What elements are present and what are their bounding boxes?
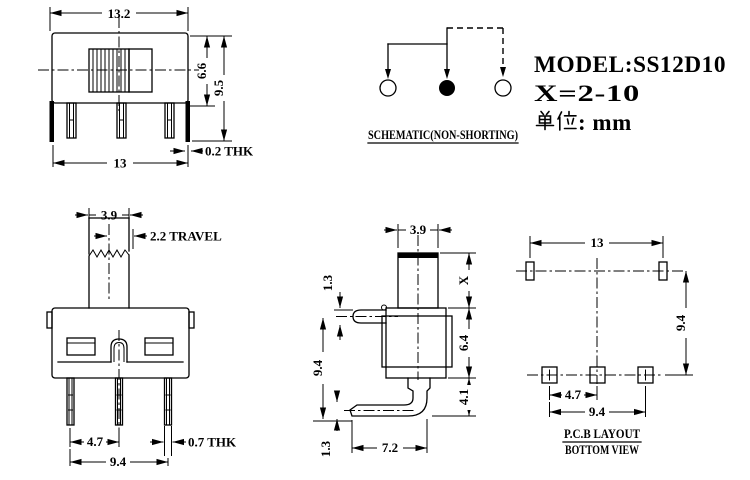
end-view: 3.9 2.2 TRAVEL bbox=[47, 207, 237, 469]
front-height-inner-dim: 6.6 bbox=[194, 62, 209, 79]
pcb-pad-pitch-dim: 4.7 bbox=[565, 387, 582, 402]
pcb-pad-span-dim: 9.4 bbox=[589, 404, 606, 419]
front-pins bbox=[67, 103, 174, 138]
end-knob-width-dim: 3.9 bbox=[101, 208, 118, 223]
travel-dim: 2.2 TRAVEL bbox=[150, 229, 222, 244]
side-knob-width-dim: 3.9 bbox=[410, 222, 427, 237]
terminal-3-circle bbox=[495, 80, 511, 96]
front-width-bottom-dim: 13 bbox=[114, 156, 128, 171]
pcb-mount-span-dim: 13 bbox=[591, 235, 605, 250]
terminal-1-circle bbox=[380, 80, 396, 96]
knob-height-x-dim: X bbox=[456, 275, 471, 285]
pcb-caption-line2: BOTTOM VIEW bbox=[565, 442, 639, 457]
pin-reach-dim: 7.2 bbox=[382, 440, 398, 455]
unit-suffix: : mm bbox=[578, 110, 632, 135]
body-height-dim: 6.4 bbox=[456, 334, 471, 351]
right-tab bbox=[189, 312, 194, 328]
pin-drop-dim: 4.1 bbox=[456, 389, 471, 405]
body-windows bbox=[67, 338, 173, 355]
terminal-common-circle bbox=[439, 80, 455, 96]
arrow-to-pin1 bbox=[385, 69, 391, 79]
front-view: 13.2 6.6 9.5 bbox=[38, 6, 254, 171]
front-height-overall-dim: 9.5 bbox=[211, 79, 226, 96]
pin-lip-dim: 1.3 bbox=[318, 440, 333, 457]
schematic-view: SCHEMATIC(NON-SHORTING) bbox=[368, 28, 518, 143]
end-pin-span-dim: 9.4 bbox=[110, 454, 127, 469]
left-tab bbox=[47, 312, 52, 328]
x-range: X=2-10 bbox=[534, 81, 640, 106]
side-view: 3.9 1.3 9.4 1.3 7. bbox=[310, 222, 476, 457]
end-pin-thickness-dim: 0.7 THK bbox=[188, 435, 237, 450]
model-number: MODEL:SS12D10 bbox=[534, 52, 726, 77]
front-bracket-thickness-dim: 0.2 THK bbox=[205, 144, 254, 159]
actuator-end bbox=[89, 218, 129, 308]
right-bracket bbox=[186, 101, 191, 142]
lug-thickness-dim: 1.3 bbox=[320, 274, 335, 291]
drawing-canvas: 13.2 6.6 9.5 bbox=[0, 0, 750, 480]
arrow-to-pin3 bbox=[500, 67, 506, 77]
pcb-caption-line1: P.C.B LAYOUT bbox=[564, 426, 640, 441]
arrow-to-common bbox=[444, 69, 450, 79]
schematic-caption: SCHEMATIC(NON-SHORTING) bbox=[368, 127, 518, 142]
pcb-row-spacing-dim: 9.4 bbox=[673, 314, 688, 331]
side-overall-height-dim: 9.4 bbox=[310, 359, 325, 376]
info-block: MODEL:SS12D10 X=2-10 : mm bbox=[534, 52, 726, 135]
end-pin-pitch-dim: 4.7 bbox=[87, 434, 104, 449]
pcb-layout-view: 13 9.4 4.7 9.4 P.C.B LAYOUT BOTTOM bbox=[516, 235, 693, 457]
body-notch bbox=[58, 339, 183, 362]
technical-drawing-sheet: 13.2 6.6 9.5 bbox=[0, 0, 750, 480]
unit-label-cjk-glyphs bbox=[537, 112, 577, 131]
left-bracket bbox=[50, 101, 55, 142]
switch-body-band bbox=[382, 316, 452, 367]
